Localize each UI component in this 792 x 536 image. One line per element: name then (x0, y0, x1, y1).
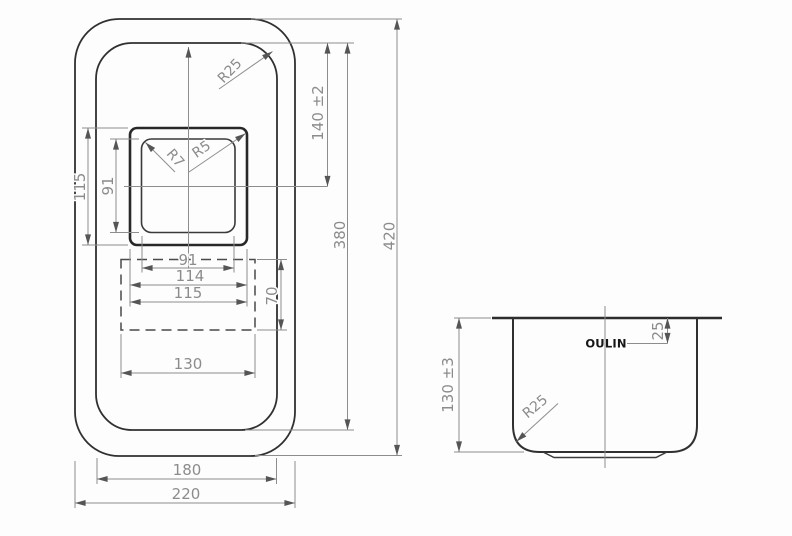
brand-logo: OULIN (585, 337, 626, 351)
radius-label-r25: R25 (215, 56, 246, 87)
dim-text-overall-length: 420 (381, 222, 399, 251)
plan-view: 115 91 91 114 115 70 130 180 220 140 ±2 … (71, 19, 402, 508)
dim-text-rim-width: 180 (173, 461, 202, 479)
dim-text-bowl-bottom-height: 91 (99, 176, 117, 195)
dim-text-top-to-center: 140 ±2 (309, 85, 327, 141)
dim-text-bowl-depth: 130 ±3 (439, 357, 457, 413)
radius-callouts-plan: R25 R7 R5 (146, 52, 273, 173)
dim-text-bowl-opening-height: 115 (71, 173, 89, 202)
dim-text-rim-length: 380 (331, 221, 349, 250)
dim-text-drain-width: 130 (174, 355, 203, 373)
radius-label-r25-side: R25 (520, 392, 551, 422)
radius-label-r7: R7 (163, 146, 187, 171)
cad-sheet: 115 91 91 114 115 70 130 180 220 140 ±2 … (0, 0, 792, 536)
dim-text-bowl-opening-width: 115 (174, 284, 203, 302)
drawing-canvas: 115 91 91 114 115 70 130 180 220 140 ±2 … (0, 0, 792, 536)
side-view: OULIN 130 ±3 25 R25 (439, 306, 722, 468)
dim-text-drain-height: 70 (263, 286, 281, 305)
extension-lines-plan (75, 19, 402, 508)
dim-text-overall-width: 220 (172, 485, 201, 503)
sink-outer-outline (75, 19, 295, 456)
dim-text-logo-offset: 25 (649, 321, 667, 340)
dim-text-bowl-mid-width: 114 (176, 267, 205, 285)
